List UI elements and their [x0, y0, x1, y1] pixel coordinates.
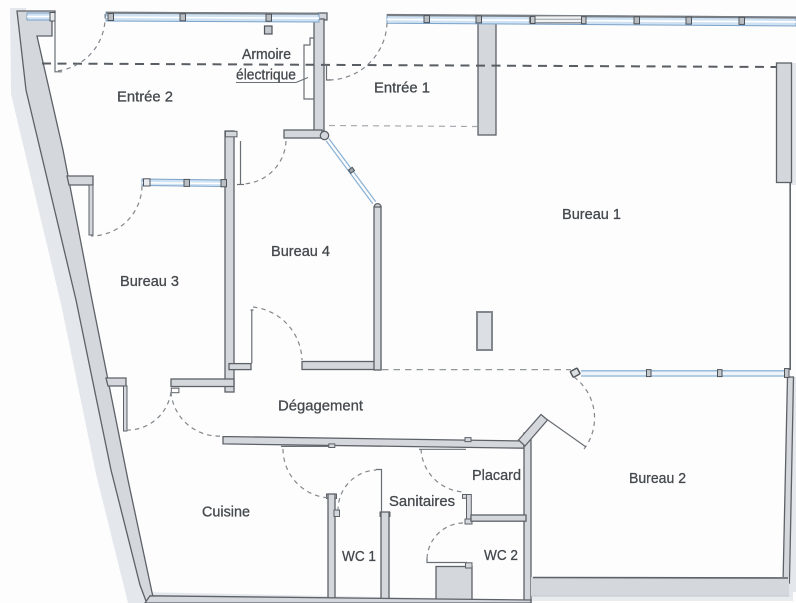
- svg-text:électrique: électrique: [236, 67, 296, 84]
- svg-text:Entrée 1: Entrée 1: [374, 80, 430, 97]
- svg-text:Bureau 2: Bureau 2: [629, 470, 686, 487]
- svg-text:Armoire: Armoire: [242, 46, 291, 63]
- svg-text:Bureau 4: Bureau 4: [271, 243, 330, 260]
- svg-text:Bureau 1: Bureau 1: [562, 206, 621, 223]
- svg-text:Sanitaires: Sanitaires: [389, 493, 455, 510]
- svg-text:Cuisine: Cuisine: [202, 504, 250, 521]
- svg-text:Placard: Placard: [472, 467, 521, 484]
- svg-text:Entrée 2: Entrée 2: [117, 89, 173, 106]
- svg-text:Dégagement: Dégagement: [278, 398, 364, 415]
- svg-text:WC 2: WC 2: [484, 547, 518, 564]
- svg-text:Bureau 3: Bureau 3: [120, 273, 179, 290]
- svg-text:WC 1: WC 1: [342, 548, 376, 565]
